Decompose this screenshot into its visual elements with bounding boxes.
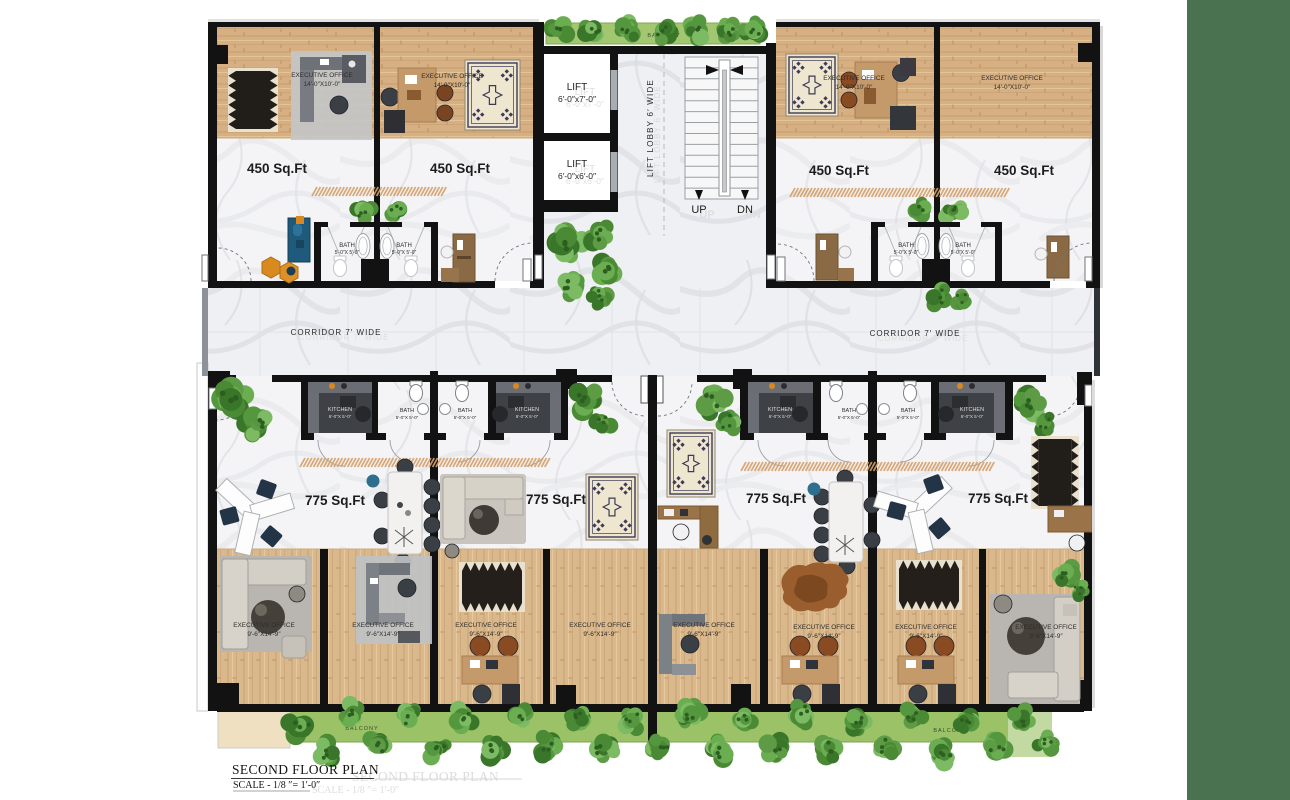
svg-text:6′-0″X 5′-0″: 6′-0″X 5′-0″ [769,414,792,419]
svg-text:5′-0″X 5′-0″: 5′-0″X 5′-0″ [396,415,419,420]
svg-text:450 Sq.Ft: 450 Sq.Ft [247,161,308,176]
svg-text:14′-0″X10′-0″: 14′-0″X10′-0″ [304,81,342,88]
svg-text:450 Sq.Ft: 450 Sq.Ft [809,163,870,178]
svg-text:6′-0″x6′-0″: 6′-0″x6′-0″ [558,171,596,181]
svg-text:5′-0″X 5′-0″: 5′-0″X 5′-0″ [897,415,920,420]
svg-text:14′-0″X10′-0″: 14′-0″X10′-0″ [836,84,874,91]
svg-text:5′-0″X 5′-0″: 5′-0″X 5′-0″ [894,250,919,256]
svg-text:LIFT: LIFT [567,159,588,170]
svg-text:LIFT: LIFT [567,82,588,93]
svg-text:EXECUTIVE OFFICE: EXECUTIVE OFFICE [455,622,516,629]
svg-text:6′-0″X 5′-0″: 6′-0″X 5′-0″ [329,414,352,419]
svg-text:9′-6″X14′-9″: 9′-6″X14′-9″ [1029,633,1063,640]
svg-text:9′-6″X14′-9″: 9′-6″X14′-9″ [247,631,281,638]
svg-text:DN: DN [737,204,753,216]
svg-text:9′-6″X14′-9″: 9′-6″X14′-9″ [469,631,503,638]
svg-text:UP: UP [691,204,706,216]
svg-text:CORRIDOR 7′ WIDE: CORRIDOR 7′ WIDE [291,328,382,337]
svg-text:EXECUTIVE OFFICE: EXECUTIVE OFFICE [895,624,956,631]
svg-text:SCALE - 1/8 ″= 1′-0″: SCALE - 1/8 ″= 1′-0″ [312,785,399,796]
svg-text:EXECUTIVE OFFICE: EXECUTIVE OFFICE [291,72,352,79]
svg-text:14′-0″X10′-0″: 14′-0″X10′-0″ [434,82,472,89]
svg-text:BATH: BATH [396,243,412,249]
svg-text:775 Sq.Ft: 775 Sq.Ft [968,491,1029,506]
svg-text:9′-6″X14′-9″: 9′-6″X14′-9″ [366,631,400,638]
svg-text:9′-6″X14′-9″: 9′-6″X14′-9″ [583,631,617,638]
svg-text:BATH: BATH [955,243,971,249]
svg-text:EXECUTIVE OFFICE: EXECUTIVE OFFICE [1015,624,1076,631]
svg-text:EXECUTIVE OFFICE: EXECUTIVE OFFICE [233,622,294,629]
svg-text:SCALE - 1/8 ″= 1′-0″: SCALE - 1/8 ″= 1′-0″ [233,780,320,791]
svg-text:BATH: BATH [901,408,915,414]
svg-text:BATH: BATH [339,243,355,249]
svg-text:BATH: BATH [458,408,472,414]
svg-text:EXECUTIVE OFFICE: EXECUTIVE OFFICE [823,75,884,82]
svg-text:EXECUTIVE OFFICE: EXECUTIVE OFFICE [421,73,482,80]
svg-text:EXECUTIVE OFFICE: EXECUTIVE OFFICE [673,622,734,629]
svg-text:BATH: BATH [842,408,856,414]
svg-text:BATH: BATH [400,408,414,414]
svg-text:9′-6″X14′-9″: 9′-6″X14′-9″ [807,633,841,640]
svg-text:KITCHEN: KITCHEN [515,407,539,413]
svg-text:LIFT LOBBY 6′ WIDE: LIFT LOBBY 6′ WIDE [646,79,655,177]
svg-text:775 Sq.Ft: 775 Sq.Ft [526,492,587,507]
svg-text:EXECUTIVE OFFICE: EXECUTIVE OFFICE [981,75,1042,82]
svg-text:450 Sq.Ft: 450 Sq.Ft [994,163,1055,178]
svg-text:14′-0″X10′-0″: 14′-0″X10′-0″ [994,84,1032,91]
svg-text:5′-0″X 5′-0″: 5′-0″X 5′-0″ [454,415,477,420]
svg-text:6′-0″X 5′-0″: 6′-0″X 5′-0″ [516,414,539,419]
svg-text:775 Sq.Ft: 775 Sq.Ft [746,491,807,506]
svg-text:5′-0″X 5′-0″: 5′-0″X 5′-0″ [838,415,861,420]
svg-text:450 Sq.Ft: 450 Sq.Ft [430,161,491,176]
svg-text:5′-0″X 5′-0″: 5′-0″X 5′-0″ [951,250,976,256]
svg-text:KITCHEN: KITCHEN [768,407,792,413]
svg-text:775 Sq.Ft: 775 Sq.Ft [305,493,366,508]
svg-text:SECOND FLOOR PLAN: SECOND FLOOR PLAN [232,762,379,777]
svg-text:5′-0″X 5′-0″: 5′-0″X 5′-0″ [335,250,360,256]
svg-text:9′-6″X14′-9″: 9′-6″X14′-9″ [687,631,721,638]
svg-text:6′-0″x7′-0″: 6′-0″x7′-0″ [558,94,596,104]
svg-text:6′-0″X 5′-0″: 6′-0″X 5′-0″ [961,414,984,419]
svg-text:9′-6″X14′-9″: 9′-6″X14′-9″ [909,633,943,640]
svg-text:BATH: BATH [898,243,914,249]
svg-text:KITCHEN: KITCHEN [960,407,984,413]
svg-text:EXECUTIVE OFFICE: EXECUTIVE OFFICE [352,622,413,629]
svg-text:EXECUTIVE OFFICE: EXECUTIVE OFFICE [569,622,630,629]
svg-text:KITCHEN: KITCHEN [328,407,352,413]
svg-text:CORRIDOR 7′ WIDE: CORRIDOR 7′ WIDE [870,329,961,338]
svg-text:EXECUTIVE OFFICE: EXECUTIVE OFFICE [793,624,854,631]
svg-text:5′-0″X 5′-0″: 5′-0″X 5′-0″ [392,250,417,256]
